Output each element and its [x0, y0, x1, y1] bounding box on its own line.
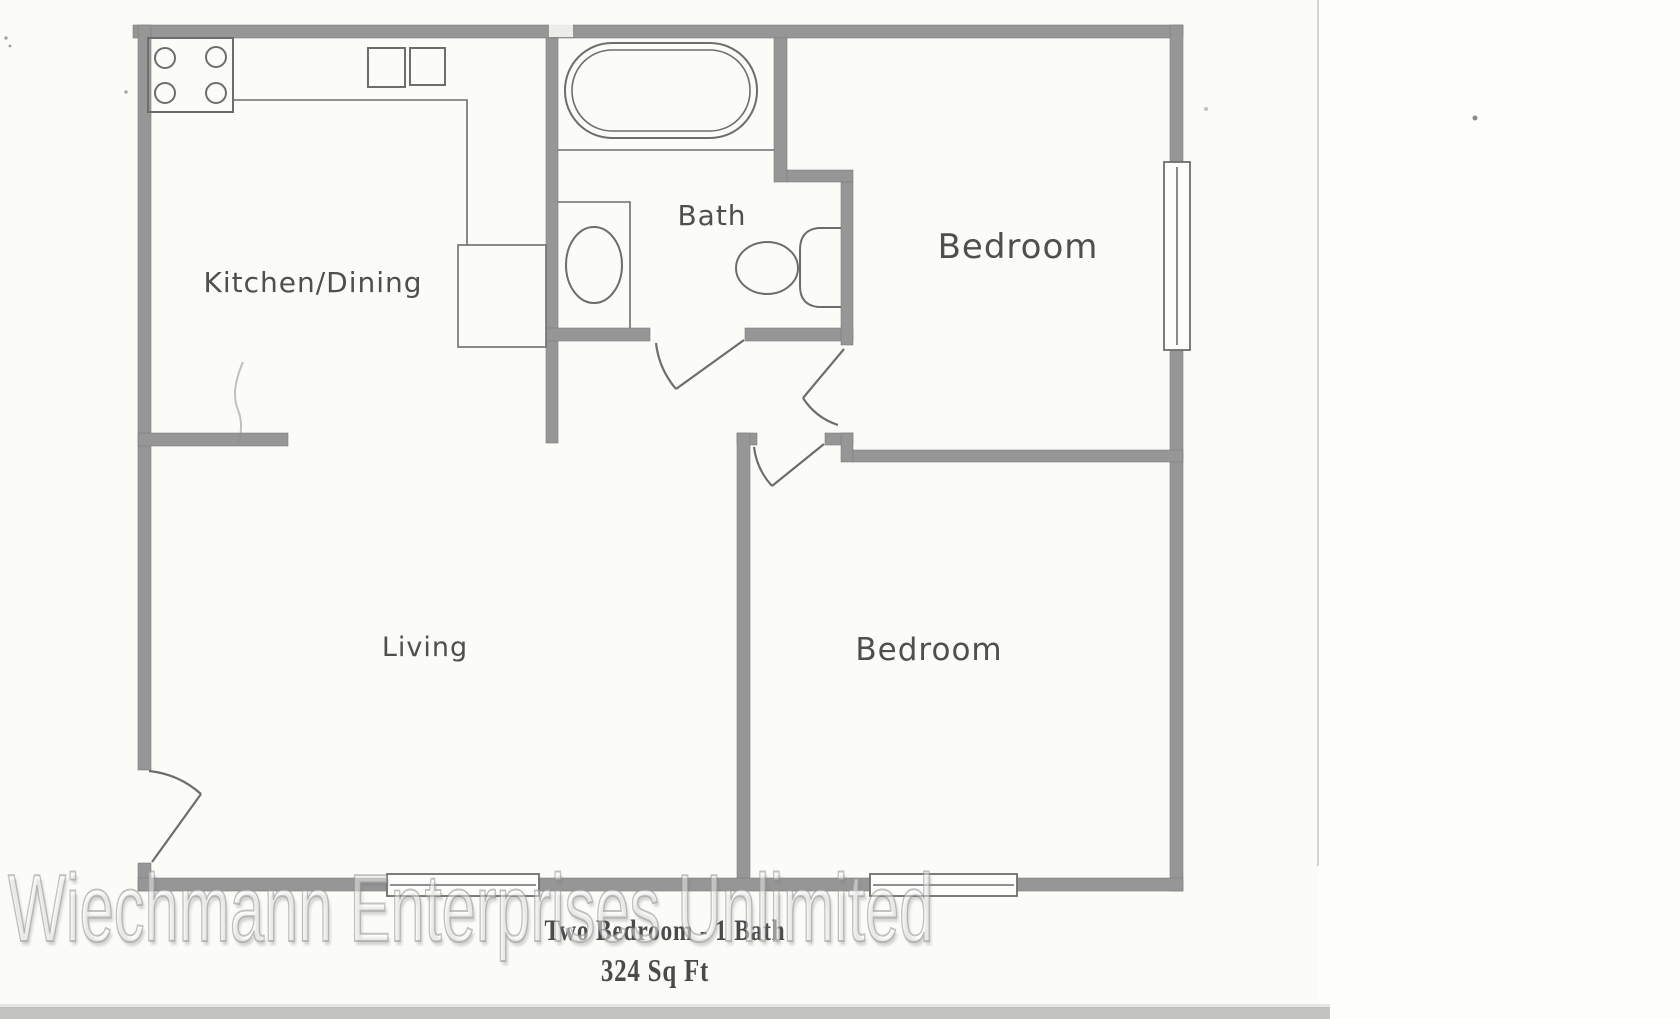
window-bottom-right [870, 874, 1017, 896]
wall-bedroom1-bottom [853, 450, 1183, 462]
plan-area: 324 Sq Ft [476, 952, 835, 989]
wall-left [138, 25, 151, 770]
scanned-floorplan-page: { "footer": { "title": "Two Bedroom - 1 … [0, 0, 1680, 1019]
interior-walls [138, 38, 1183, 878]
bathtub-icon [558, 43, 774, 150]
wall-bath-bottom-right [745, 328, 853, 341]
wall-bath-bedroom-upper [774, 38, 787, 182]
windows [387, 162, 1190, 896]
kitchen-fixtures [148, 38, 546, 347]
room-label-bedroom-bottom: Bedroom [855, 632, 1002, 668]
wall-hall-bedroom-lower [841, 433, 853, 462]
window-bottom-left [387, 874, 539, 896]
wall-bottom-right [1017, 878, 1183, 891]
room-label-kitchen-dining: Kitchen/Dining [203, 266, 422, 299]
stove-burners-icon [148, 38, 233, 112]
scan-speck [9, 45, 12, 48]
scan-speck [1473, 116, 1478, 121]
wall-kitchen-living-stub [138, 433, 288, 446]
wall-top [133, 25, 1183, 38]
scan-gap-artifact [549, 24, 573, 37]
scan-speck [124, 90, 128, 94]
wall-hall-bedroom-upper [841, 182, 853, 345]
bedroom1-door-swing-icon [803, 349, 844, 425]
toilet-icon [736, 228, 841, 307]
bath-fixtures [558, 43, 841, 328]
vanity-sink-icon [558, 202, 630, 328]
wall-bath-bottom-left [546, 328, 650, 341]
wall-bottom-left [138, 878, 387, 891]
scan-speck [1204, 107, 1208, 111]
scan-speck [4, 36, 7, 39]
scan-bottom-band [0, 1007, 1330, 1019]
wall-bath-bedroom-jog [787, 170, 853, 182]
room-label-bath: Bath [677, 199, 746, 232]
window-right-wall [1164, 162, 1190, 350]
bedroom2-door-swing-icon [754, 444, 824, 486]
room-labels: Kitchen/Dining Bath Bedroom Living Bedro… [203, 199, 1098, 668]
kitchen-double-sink-icon [368, 48, 445, 87]
wall-kitchen-bath [546, 38, 558, 443]
room-label-bedroom-top: Bedroom [938, 227, 1099, 267]
pantry-box-icon [458, 245, 546, 347]
bath-door-swing-icon [656, 340, 744, 389]
room-label-living: Living [382, 632, 468, 663]
plan-title: Two Bedroom - 1 Bath [486, 914, 845, 948]
counter-icon [233, 100, 467, 245]
front-door-swing-icon [149, 771, 201, 862]
wall-living-bedroom-divider [737, 433, 750, 878]
wall-bottom-center [539, 878, 870, 891]
floor-plan-drawing: Kitchen/Dining Bath Bedroom Living Bedro… [0, 0, 1680, 1019]
pencil-squiggle-artifact [235, 362, 243, 444]
